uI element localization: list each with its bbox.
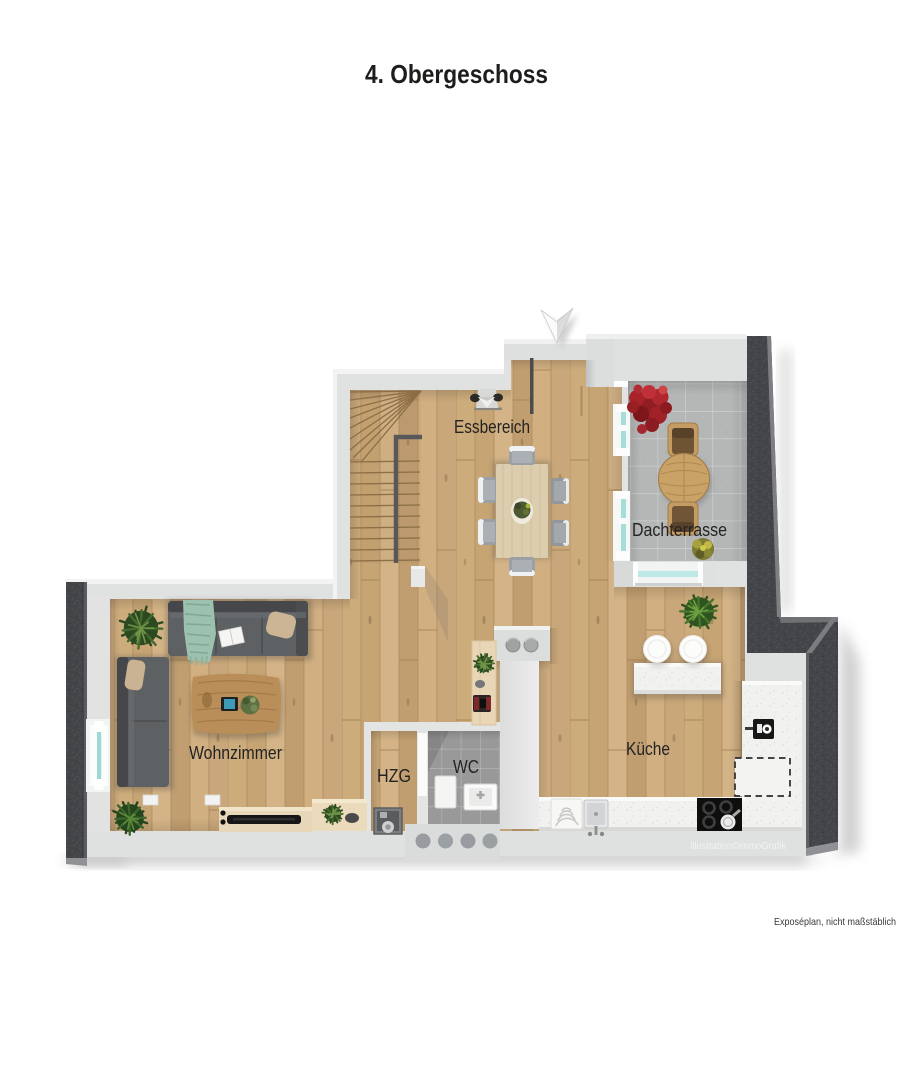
svg-text:Illustration©immoGrafik: Illustration©immoGrafik: [690, 841, 787, 852]
svg-text:HZG: HZG: [377, 765, 411, 786]
svg-text:Wohnzimmer: Wohnzimmer: [189, 742, 282, 763]
svg-text:Essbereich: Essbereich: [454, 416, 530, 437]
svg-text:WC: WC: [453, 756, 479, 777]
svg-text:Küche: Küche: [626, 738, 670, 759]
svg-text:4. Obergeschoss: 4. Obergeschoss: [365, 59, 548, 89]
svg-text:Exposéplan, nicht maßstäblich: Exposéplan, nicht maßstäblich: [774, 916, 896, 928]
svg-text:Dachterrasse: Dachterrasse: [632, 519, 727, 540]
